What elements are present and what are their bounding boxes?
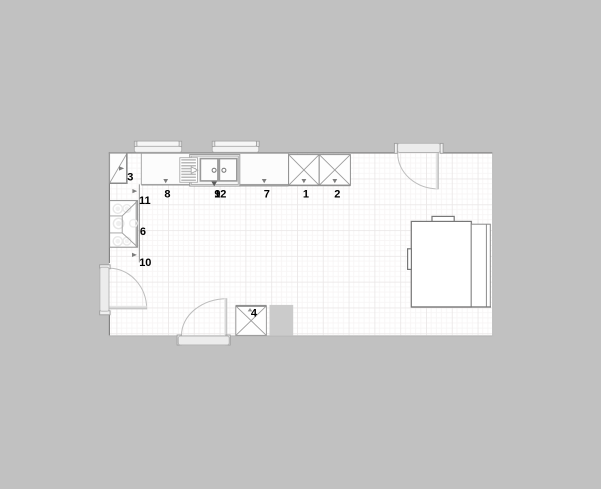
svg-text:11: 11: [139, 195, 151, 207]
svg-text:3: 3: [127, 172, 133, 184]
svg-text:2: 2: [334, 188, 340, 200]
svg-text:10: 10: [139, 257, 151, 269]
svg-text:12: 12: [214, 188, 226, 200]
svg-text:6: 6: [140, 226, 146, 238]
svg-text:4: 4: [251, 308, 258, 320]
svg-text:1: 1: [303, 188, 309, 200]
svg-text:7: 7: [264, 188, 270, 200]
svg-text:8: 8: [164, 188, 170, 200]
